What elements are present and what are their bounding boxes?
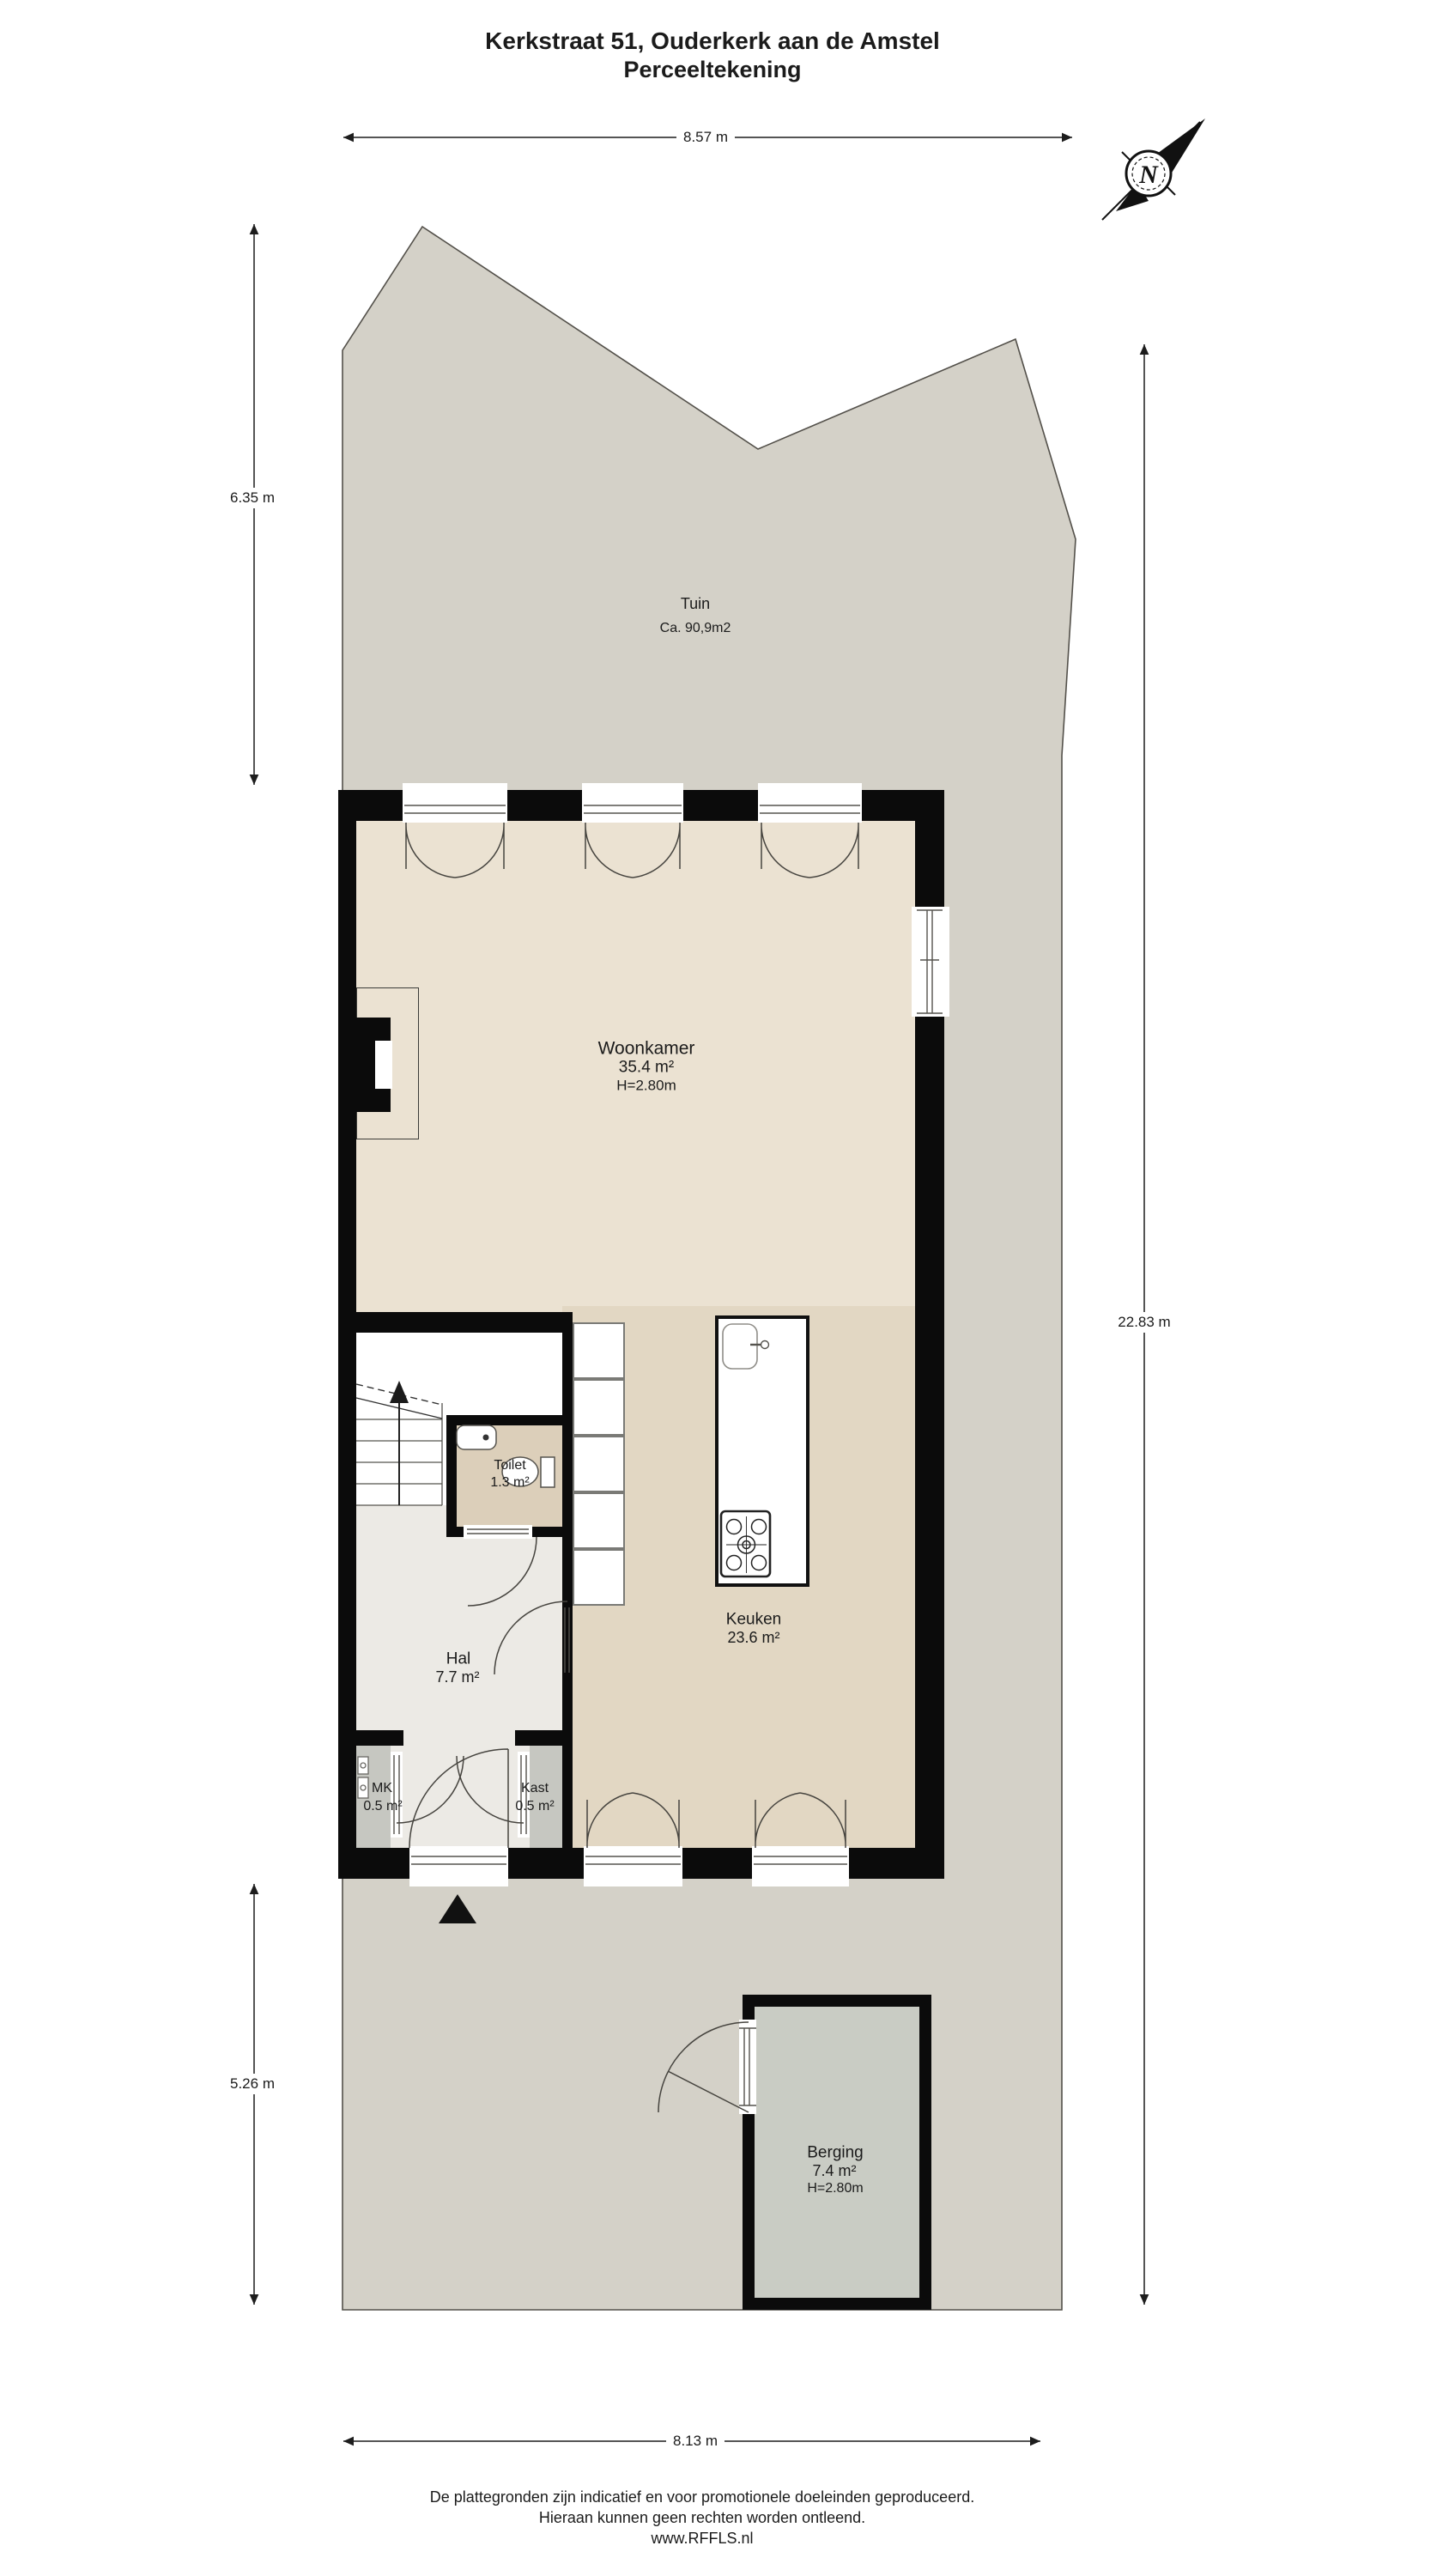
footer-website: www.RFFLS.nl	[651, 2530, 753, 2548]
kitchen-cabinet	[573, 1379, 625, 1436]
footer-disclaimer-line1: De plattegronden zijn indicatief en voor…	[430, 2488, 974, 2506]
room-kast	[530, 1746, 562, 1848]
mk-door-opening	[391, 1752, 403, 1838]
dim-label-right: 22.83 m	[1111, 1312, 1177, 1333]
room-label-berging: Berging	[807, 2145, 864, 2161]
kitchen-cabinet	[573, 1436, 625, 1492]
interior-wall-woonkamer	[356, 1312, 573, 1333]
room-label-hal: Hal	[446, 1651, 471, 1668]
dim-label-top: 8.57 m	[676, 127, 735, 148]
room-area-hal: 7.7 m²	[435, 1669, 479, 1685]
keuken-door-opening-1	[584, 1846, 682, 1886]
room-area-toilet: 1.3 m²	[490, 1476, 529, 1490]
kitchen-cabinet	[573, 1322, 625, 1379]
room-label-woonkamer: Woonkamer	[598, 1040, 695, 1058]
room-area-woonkamer: 35.4 m²	[619, 1060, 674, 1076]
room-height-berging: H=2.80m	[807, 2182, 863, 2196]
kitchen-island	[715, 1315, 809, 1587]
page-title-line2: Perceeltekening	[623, 57, 801, 83]
page-title-line1: Kerkstraat 51, Ouderkerk aan de Amstel	[485, 27, 940, 55]
room-label-keuken: Keuken	[726, 1612, 781, 1628]
floorplan-page: N Kerkstraat 51, Ouderkerk aan de Amstel…	[0, 0, 1449, 2576]
room-mk	[356, 1746, 391, 1848]
mk-wall	[338, 1730, 403, 1746]
room-label-mk: MK	[372, 1782, 392, 1795]
room-area-kast: 0.5 m²	[515, 1800, 554, 1814]
garden-area-label: Ca. 90,9m2	[660, 622, 731, 635]
dim-label-bottom: 8.13 m	[666, 2431, 724, 2451]
backdoor-opening-2	[582, 783, 683, 823]
footer-disclaimer-line2: Hieraan kunnen geen rechten worden ontle…	[539, 2509, 865, 2527]
dim-label-left-lower: 5.26 m	[223, 2074, 282, 2094]
garden-label: Tuin	[681, 596, 710, 611]
toilet-door-opening	[464, 1525, 532, 1539]
room-height-woonkamer: H=2.80m	[616, 1078, 676, 1093]
room-area-keuken: 23.6 m²	[727, 1630, 779, 1645]
kitchen-cabinet	[573, 1492, 625, 1549]
interior-wall-hal-keuken	[562, 1333, 573, 1848]
room-label-toilet: Toilet	[494, 1459, 525, 1473]
kitchen-cabinet	[573, 1549, 625, 1606]
window-opening	[912, 907, 949, 1017]
keuken-door-opening-2	[752, 1846, 849, 1886]
front-door-opening	[409, 1846, 508, 1886]
chimney-niche	[375, 1041, 392, 1089]
room-area-mk: 0.5 m²	[363, 1800, 402, 1814]
backdoor-opening-3	[758, 783, 862, 823]
berging-door-opening	[739, 2020, 756, 2114]
dim-label-left-upper: 6.35 m	[223, 488, 282, 508]
room-label-kast: Kast	[521, 1782, 549, 1795]
backdoor-opening-1	[403, 783, 507, 823]
room-area-berging: 7.4 m²	[812, 2163, 856, 2178]
kast-wall	[515, 1730, 573, 1746]
